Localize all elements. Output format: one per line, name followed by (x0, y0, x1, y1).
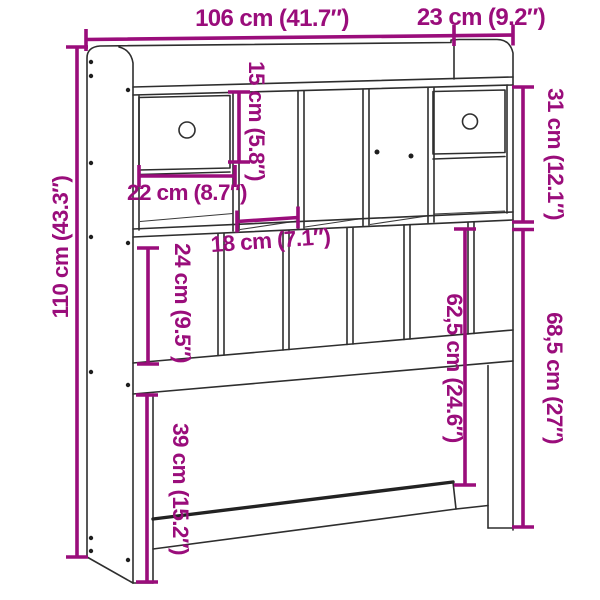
top-shelf-bottom-edge (133, 85, 513, 95)
dimension-top-section-height: 31 cm (12.1″) (512, 87, 568, 222)
screw-hole (89, 370, 93, 374)
dimension-label-rail-bottom-height: 68,5 cm (27″) (542, 312, 567, 444)
dimension-label-lower-clearance-height: 39 cm (15.2″) (168, 423, 193, 555)
diagram-canvas: 106 cm (41.7″) 23 cm (9.2″) 110 cm (43.3… (0, 0, 600, 600)
dimension-drawer-compartment-width: 22 cm (8.7″) (127, 165, 247, 205)
screw-hole (409, 154, 414, 159)
left-drawer-shelf (139, 172, 230, 175)
dimension-depth: 23 cm (9.2″) (417, 4, 545, 31)
screw-hole (89, 161, 93, 165)
dimension-panel-section-height: 24 cm (9.5″) (137, 243, 195, 364)
panel-groove-4 (404, 225, 410, 340)
screw-hole (89, 549, 93, 553)
dimension-line (512, 87, 534, 222)
dimension-compartment-height: 15 cm (5.8″) (228, 61, 269, 181)
dimension-label-open-compartment-width: 18 cm (7.1″) (210, 224, 331, 257)
left-side-panel-front-edge (119, 47, 133, 583)
dimension-label-panel-section-height: 24 cm (9.5″) (170, 243, 195, 363)
right-drawer-shelf (433, 157, 505, 160)
screw-hole (89, 235, 93, 239)
screw-hole (89, 536, 93, 540)
headboard-dimension-diagram: 106 cm (41.7″) 23 cm (9.2″) 110 cm (43.3… (0, 0, 600, 600)
screw-hole (126, 241, 130, 245)
dimension-rail-bottom-height: 68,5 cm (27″) (512, 230, 567, 528)
screw-hole (126, 383, 130, 387)
top-shelf-front-edge (133, 77, 513, 87)
panel-groove-5 (468, 222, 474, 334)
dimension-label-drawer-compartment-width: 22 cm (8.7″) (127, 180, 247, 205)
screw-hole (89, 74, 93, 78)
right-drawer-front (433, 90, 505, 154)
bed-rail-top-edge (153, 482, 453, 519)
dimension-label-total-height: 110 cm (43.3″) (48, 176, 73, 319)
dimension-line (137, 248, 159, 364)
right-drawer-knob (463, 114, 478, 129)
dimension-label-top-section-height: 31 cm (12.1″) (543, 88, 568, 220)
panel-groove-3 (347, 227, 353, 344)
dimension-line (136, 395, 158, 582)
cubby-divider-3 (363, 89, 369, 226)
left-drawer-front (139, 96, 230, 171)
screw-hole (89, 60, 93, 64)
dimension-line (512, 230, 534, 528)
dimension-label-depth: 23 cm (9.2″) (417, 4, 545, 31)
dimension-label-rail-top-height: 62,5 cm (24.6″) (442, 293, 467, 442)
dimension-label-compartment-height: 15 cm (5.8″) (244, 61, 269, 181)
screw-hole (126, 558, 130, 562)
screw-hole (375, 150, 380, 155)
dimension-lower-clearance-height: 39 cm (15.2″) (136, 395, 193, 582)
dimension-label-total-width: 106 cm (41.7″) (195, 5, 349, 32)
left-drawer-knob (179, 122, 195, 138)
dimension-rail-top-height: 62,5 cm (24.6″) (442, 229, 476, 485)
dimension-total-height: 110 cm (43.3″) (48, 47, 88, 557)
screw-hole (126, 88, 130, 92)
